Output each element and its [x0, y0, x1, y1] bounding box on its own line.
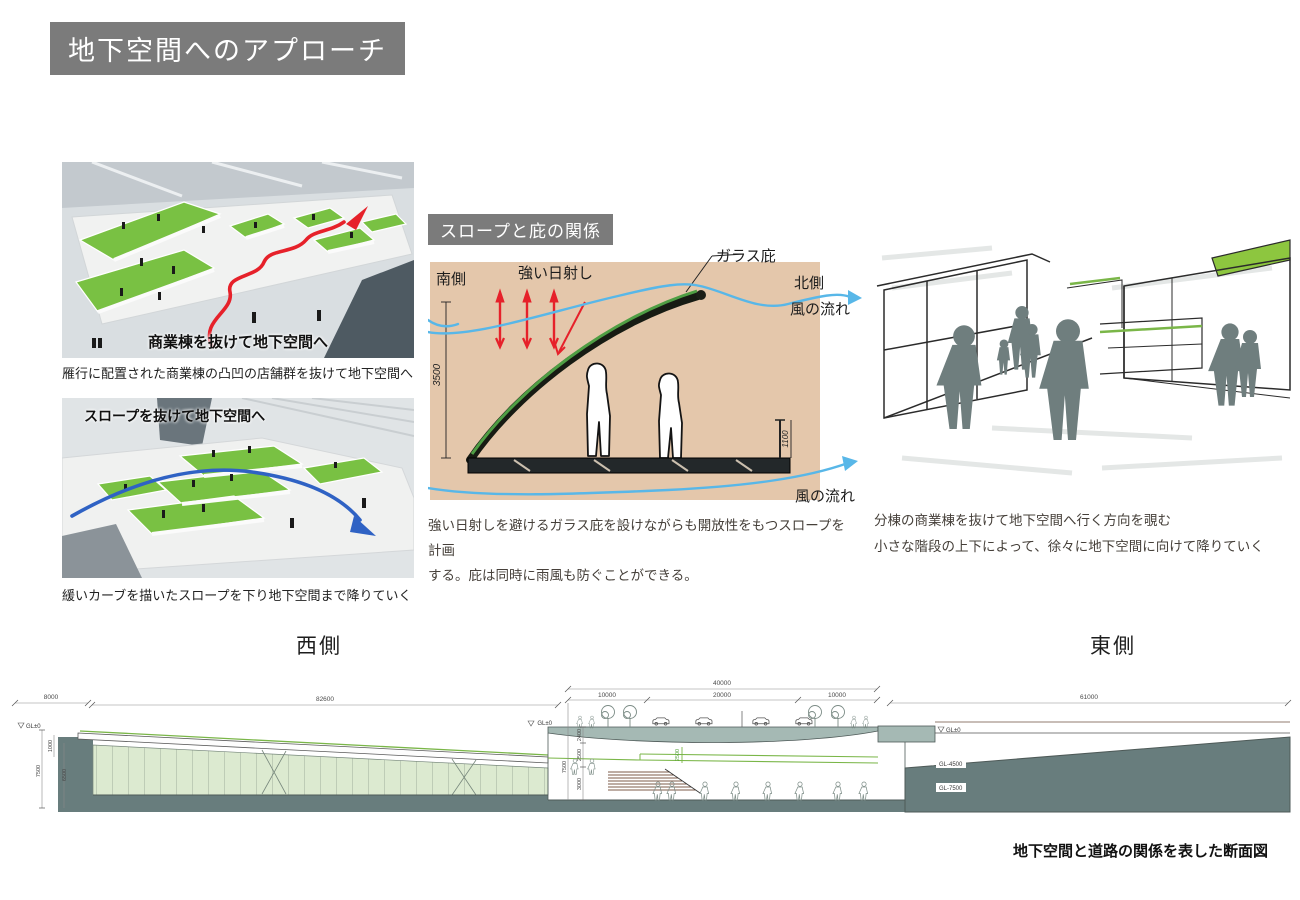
label-south: 南側 [436, 268, 466, 289]
svg-text:1000: 1000 [48, 740, 54, 752]
page-title: 地下空間へのアプローチ [50, 22, 405, 75]
sketch-caption-line1: 分棟の商業棟を抜けて地下空間へ行く方向を覗む [874, 508, 1300, 534]
underground-stairs [548, 769, 905, 800]
canopy-description-line1: 強い日射しを避けるガラス庇を設けながらも開放性をもつスロープを計画 [428, 513, 858, 563]
svg-text:GL±0: GL±0 [26, 724, 41, 730]
svg-text:GL-4500: GL-4500 [939, 762, 963, 768]
svg-text:10000: 10000 [598, 692, 616, 699]
ground-west-base [58, 795, 548, 812]
svg-text:GL±0: GL±0 [537, 721, 552, 727]
svg-text:2500: 2500 [675, 749, 681, 761]
svg-text:61000: 61000 [1080, 694, 1098, 701]
section-caption: 地下空間と道路の関係を表した断面図 [1013, 840, 1268, 861]
dimension-lines: 8000 82600 40000 10000 20000 10000 61000 [12, 680, 1291, 708]
svg-text:2400: 2400 [577, 729, 583, 741]
svg-text:GL-7500: GL-7500 [939, 786, 963, 792]
svg-text:40000: 40000 [713, 680, 731, 687]
svg-text:8000: 8000 [44, 694, 59, 701]
svg-text:82600: 82600 [316, 696, 334, 703]
sketch-captions: 分棟の商業棟を抜けて地下空間へ行く方向を覗む 小さな階段の上下によって、徐々に地… [874, 508, 1300, 560]
svg-text:20000: 20000 [713, 692, 731, 699]
photo2-overlay-caption: スロープを抜けて地下空間へ [84, 406, 265, 426]
photo1-caption: 雁行に配置された商業棟の凸凹の店舗群を抜けて地下空間へ [62, 363, 442, 382]
svg-text:7500: 7500 [36, 765, 42, 777]
underground-green-lines: 2500 [548, 747, 878, 763]
svg-text:3500: 3500 [432, 363, 443, 386]
model-photo-slope: スロープを抜けて地下空間へ [62, 398, 414, 578]
label-strong-sunlight: 強い日射し [518, 262, 593, 283]
svg-text:GL±0: GL±0 [946, 728, 961, 734]
ground-east-wedge [905, 737, 1290, 812]
svg-text:6500: 6500 [62, 769, 68, 781]
svg-text:3000: 3000 [577, 778, 583, 790]
label-glass-canopy: ガラス庇 [716, 245, 776, 266]
perspective-sketch [872, 228, 1296, 492]
label-wind-flow-bottom: 風の流れ [795, 485, 855, 506]
presentation-board: 地下空間へのアプローチ [0, 0, 1300, 900]
model-photo-commercial-image [62, 162, 414, 358]
svg-text:7500: 7500 [562, 761, 568, 773]
label-west-side: 西側 [296, 630, 342, 660]
canopy-description: 強い日射しを避けるガラス庇を設けながらも開放性をもつスロープを計画 する。庇は同… [428, 513, 858, 588]
east-ground-level [878, 722, 1290, 742]
label-east-side: 東側 [1090, 630, 1136, 660]
svg-text:10000: 10000 [828, 692, 846, 699]
middle-vertical-dimensions: 7500 2400 2500 3000 [562, 703, 586, 800]
street-level-items [577, 706, 869, 729]
west-gallery [78, 731, 548, 795]
label-north: 北側 [794, 272, 824, 293]
road-deck [548, 727, 905, 800]
ground-mid-base [548, 800, 905, 812]
svg-text:1100: 1100 [781, 430, 790, 448]
sketch-caption-line2: 小さな階段の上下によって、徐々に地下空間に向けて降りていく [874, 534, 1300, 560]
photo2-caption: 緩いカーブを描いたスロープを下り地下空間まで降りていく [62, 585, 442, 604]
svg-text:2500: 2500 [577, 749, 583, 761]
cross-section-drawing: 2500 GL±0 GL±0 GL±0 [0, 675, 1300, 825]
label-wind-flow-top: 風の流れ [790, 298, 850, 319]
model-photo-commercial: 商業棟を抜けて地下空間へ [62, 162, 414, 358]
floor-slab [468, 458, 790, 473]
photo1-overlay-caption: 商業棟を抜けて地下空間へ [62, 331, 414, 352]
canopy-description-line2: する。庇は同時に雨風も防ぐことができる。 [428, 563, 858, 588]
